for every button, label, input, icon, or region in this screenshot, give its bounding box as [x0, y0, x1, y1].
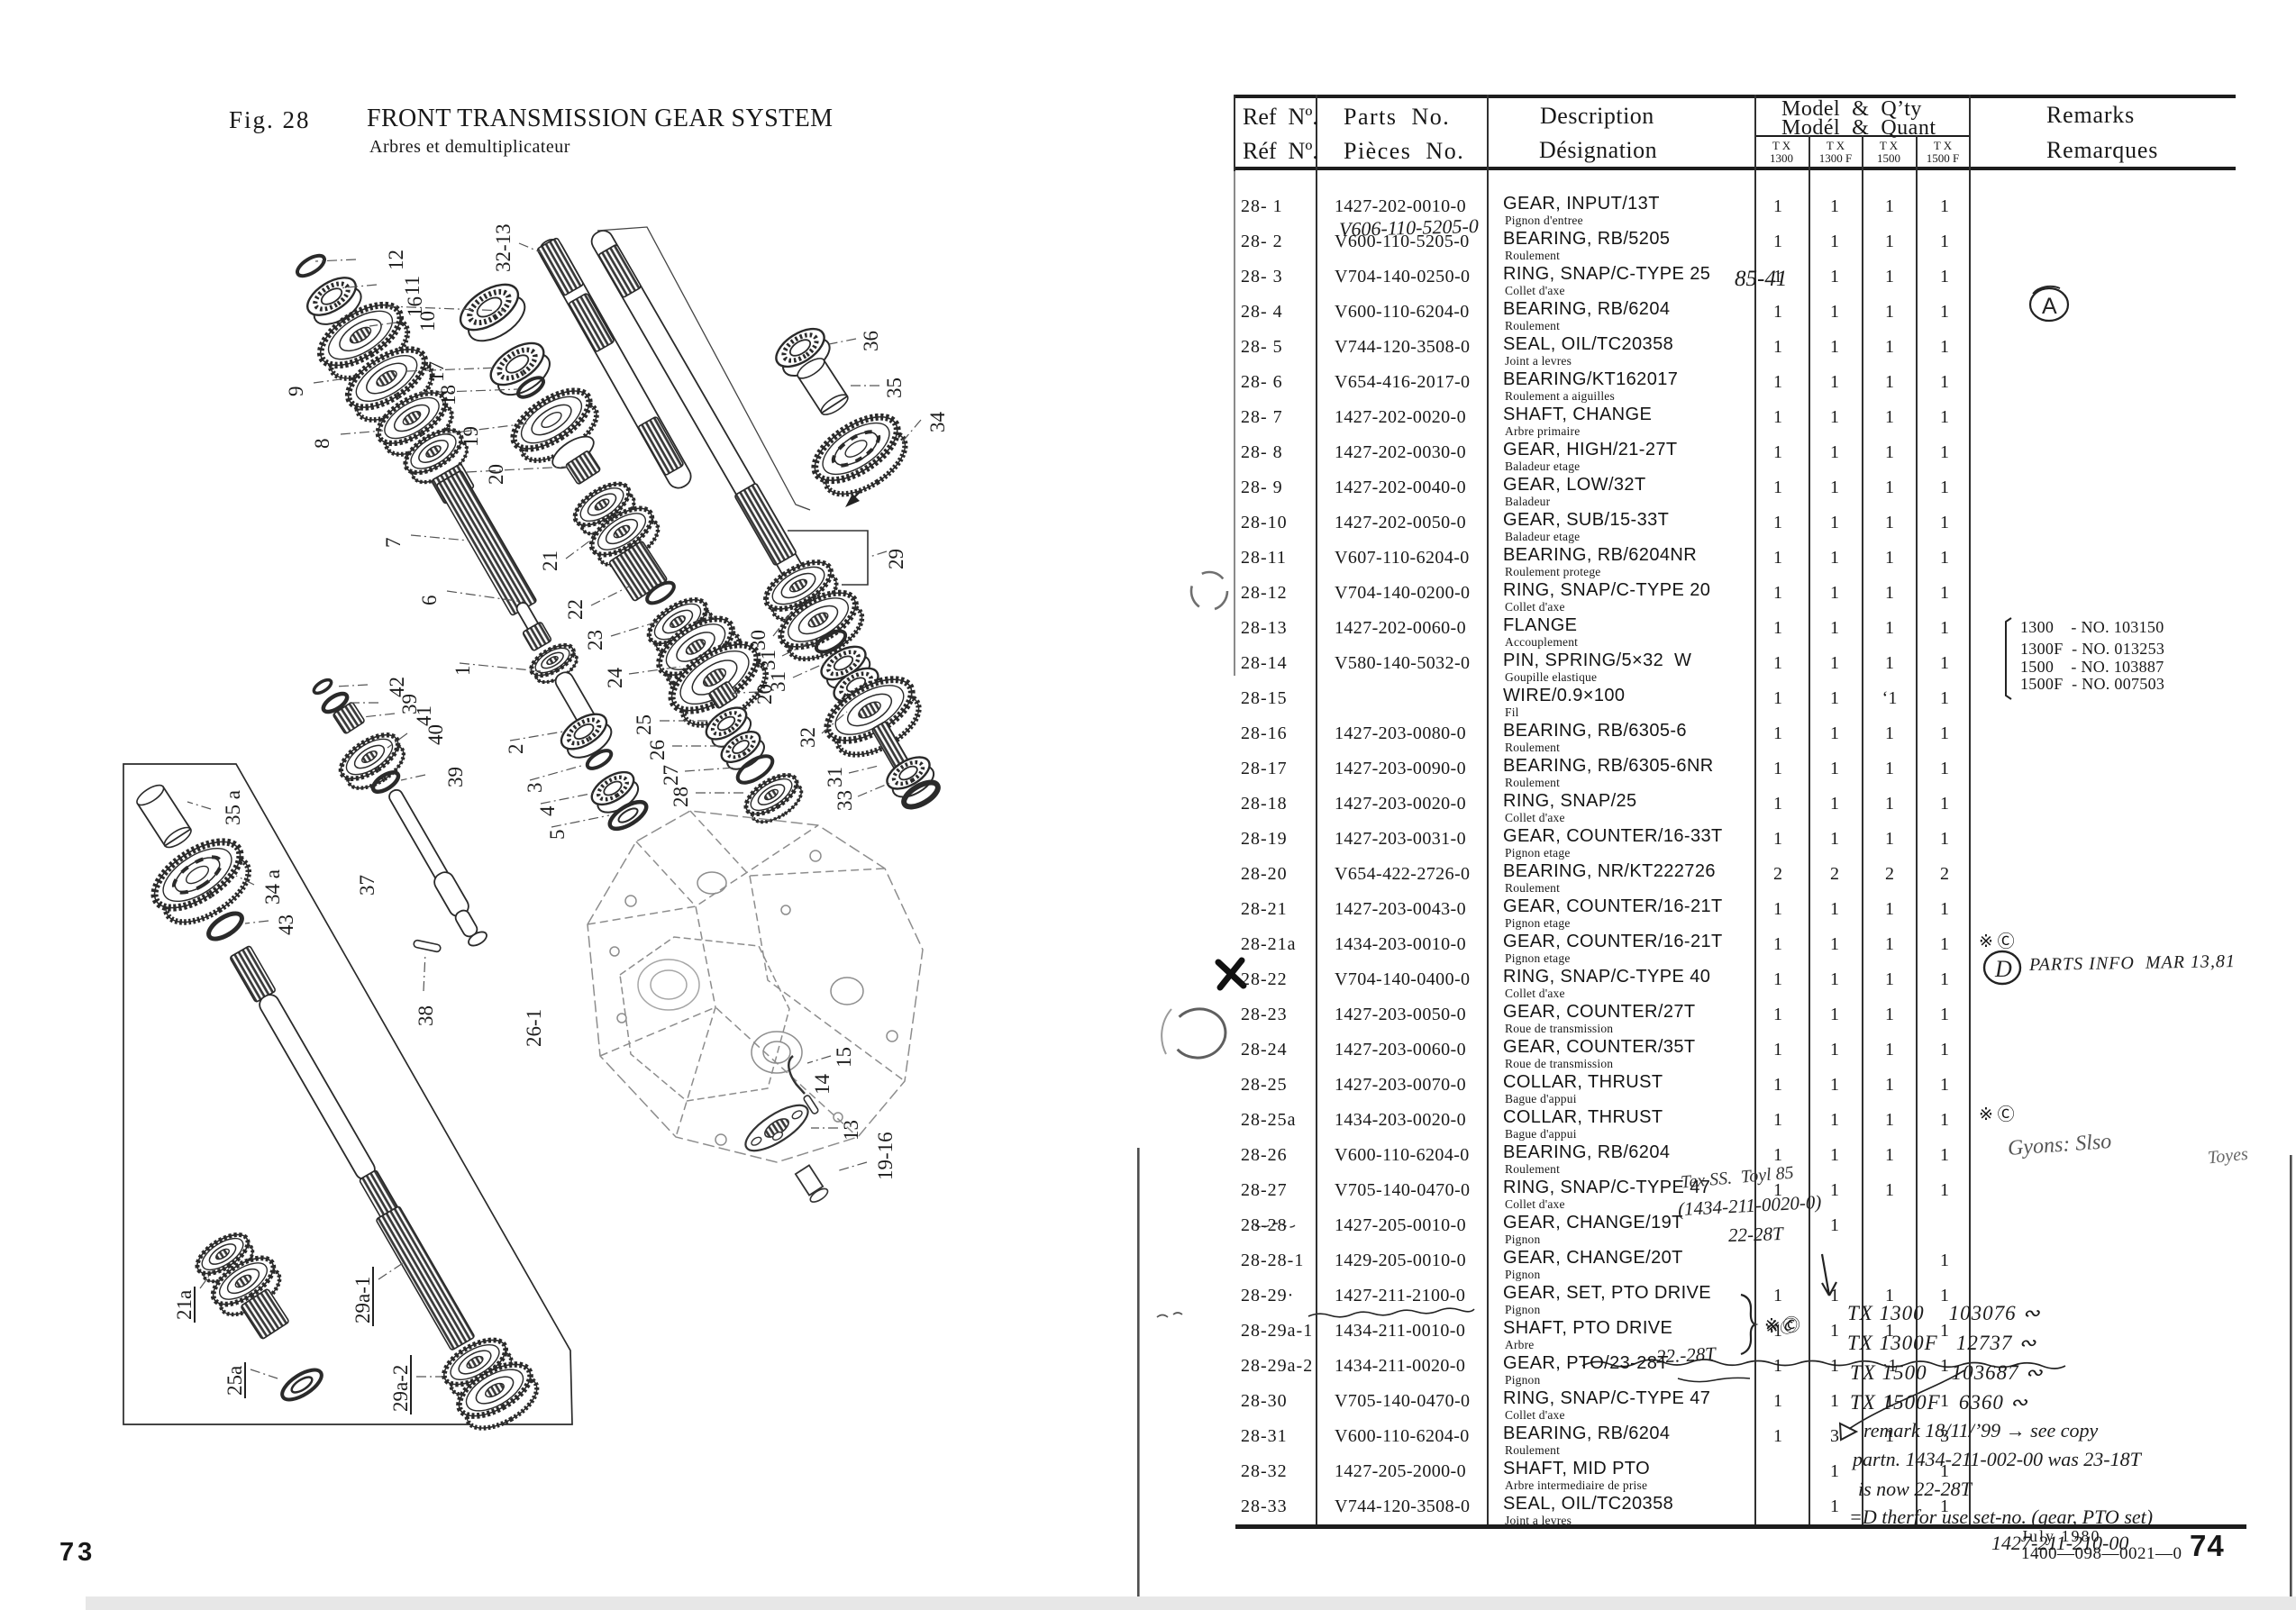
svg-text:10: 10 [416, 311, 439, 332]
svg-text:32: 32 [797, 727, 819, 748]
svg-text:32-13: 32-13 [492, 223, 515, 272]
svg-text:1: 1 [451, 666, 474, 677]
svg-text:24: 24 [604, 668, 626, 689]
svg-text:18: 18 [437, 385, 460, 405]
svg-text:26-1: 26-1 [523, 1009, 545, 1047]
svg-text:17: 17 [425, 361, 448, 382]
svg-text:43: 43 [275, 914, 297, 935]
svg-text:28: 28 [670, 787, 692, 807]
svg-text:15: 15 [833, 1047, 855, 1068]
svg-text:25a: 25a [223, 1366, 246, 1396]
svg-text:31: 31 [824, 767, 846, 787]
svg-text:39: 39 [444, 767, 467, 787]
svg-text:22: 22 [564, 599, 587, 620]
svg-text:38: 38 [415, 1005, 437, 1026]
svg-text:30: 30 [747, 630, 770, 650]
svg-text:21a: 21a [173, 1290, 196, 1320]
svg-text:34: 34 [926, 412, 949, 433]
svg-text:27: 27 [660, 765, 682, 786]
svg-text:35 a: 35 a [222, 790, 244, 825]
svg-text:21: 21 [539, 550, 561, 571]
svg-text:36: 36 [860, 331, 882, 351]
svg-text:8: 8 [311, 439, 333, 450]
svg-text:29a-2: 29a-2 [389, 1365, 412, 1412]
svg-text:23: 23 [584, 630, 606, 650]
svg-text:2: 2 [505, 744, 527, 755]
svg-text:31: 31 [757, 650, 779, 670]
svg-text:14: 14 [811, 1074, 834, 1096]
svg-text:41: 41 [413, 705, 435, 726]
svg-text:35: 35 [883, 377, 906, 398]
svg-text:29: 29 [885, 549, 907, 569]
svg-text:33: 33 [834, 790, 856, 811]
svg-text:11: 11 [401, 276, 424, 296]
svg-text:40: 40 [424, 724, 447, 745]
svg-text:25: 25 [633, 714, 655, 735]
svg-text:13: 13 [840, 1120, 862, 1141]
svg-text:6: 6 [418, 596, 441, 606]
svg-text:3: 3 [524, 783, 546, 794]
svg-text:37: 37 [356, 875, 378, 896]
svg-text:9: 9 [285, 387, 307, 397]
svg-text:12: 12 [385, 250, 407, 270]
svg-text:26: 26 [646, 740, 669, 760]
svg-text:19-16: 19-16 [874, 1132, 897, 1180]
svg-text:29a-1: 29a-1 [351, 1277, 374, 1323]
svg-text:34 a: 34 a [261, 869, 284, 905]
svg-text:5: 5 [546, 830, 569, 841]
svg-text:7: 7 [382, 538, 405, 549]
svg-text:20: 20 [753, 684, 776, 705]
svg-text:4: 4 [536, 805, 559, 816]
svg-text:19: 19 [460, 426, 482, 447]
svg-text:20: 20 [485, 464, 507, 485]
